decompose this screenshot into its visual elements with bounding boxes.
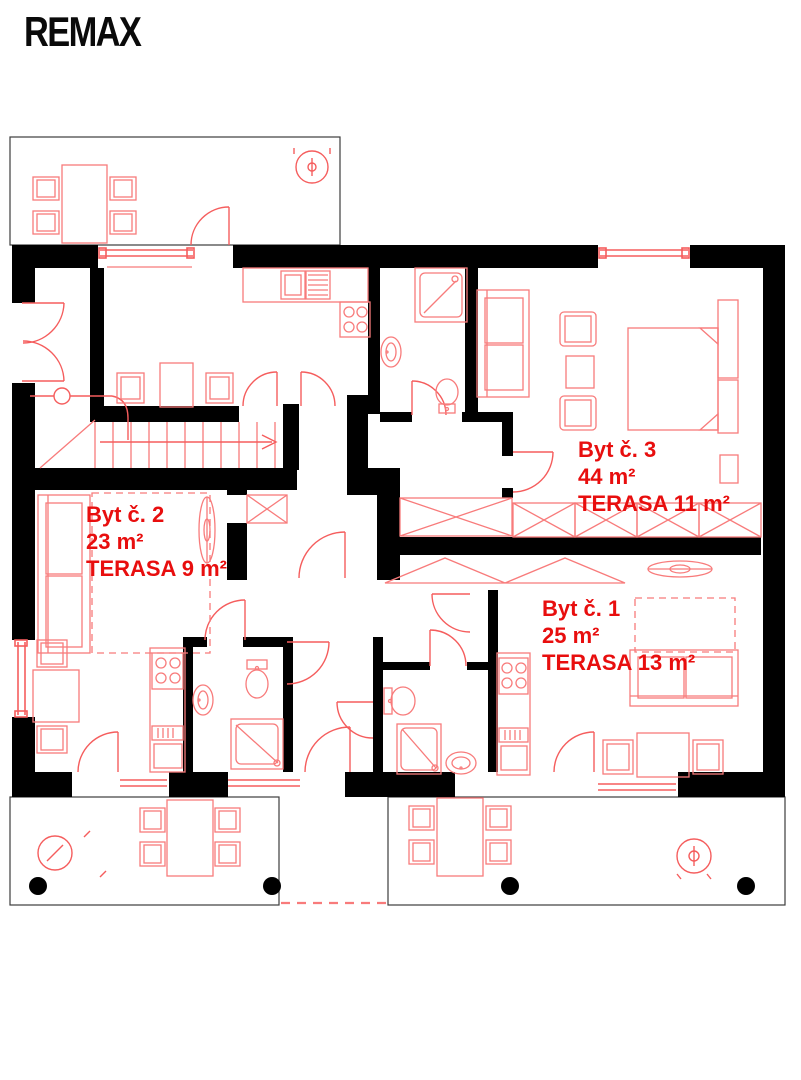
door-swing-icon [287, 642, 329, 684]
toilet-icon [384, 687, 415, 715]
door-swing-icon [513, 452, 553, 492]
sofa-icon [477, 290, 529, 397]
apartment-area: 23 m² [86, 529, 143, 554]
table-icon [33, 640, 79, 753]
study-room-furniture [117, 363, 233, 407]
dining-table [33, 165, 136, 243]
door-swing-icon [554, 732, 594, 772]
toilet-icon [246, 660, 268, 698]
ceiling-light-icon [38, 831, 106, 877]
table-icon [603, 733, 723, 777]
sink-icon [381, 337, 401, 367]
terrace-projection-dashed [635, 598, 735, 652]
window-icon [120, 780, 167, 786]
stove-icon [499, 658, 528, 694]
apartment-terrace: TERASA 13 m² [542, 650, 695, 675]
sink-icon [193, 685, 213, 715]
column-dot [263, 877, 281, 895]
apartment-area: 25 m² [542, 623, 599, 648]
shower-icon [231, 719, 283, 769]
apartment-name: Byt č. 3 [578, 437, 656, 462]
terrace-bottom-right [388, 797, 785, 905]
shower-icon [397, 724, 441, 774]
window-icon [99, 248, 194, 267]
kitchen-column [497, 653, 530, 775]
door-swing-icon [337, 702, 373, 738]
apartment-3-label: Byt č. 3 44 m² TERASA 11 m² [578, 437, 730, 516]
terrace-bottom-left [10, 797, 281, 905]
door-swing-icon [78, 732, 118, 772]
stove-icon [152, 653, 183, 689]
floorplan-drawing: Byt č. 3 44 m² TERASA 11 m² Byt č. 2 23 … [0, 0, 801, 1080]
ceiling-light-icon [294, 148, 330, 183]
sink-icon [446, 752, 476, 774]
apartment-2-label: Byt č. 2 23 m² TERASA 9 m² [86, 502, 227, 581]
door-swing-icon [301, 372, 335, 406]
sofa-icon [38, 495, 90, 653]
stairs-icon [30, 388, 276, 468]
awning-icon [199, 497, 215, 563]
door-swing-icon [299, 532, 345, 578]
ceiling-light-icon [677, 839, 711, 879]
kitchen-column [150, 648, 185, 772]
door-swing-icon [205, 600, 245, 640]
stove-icon [340, 302, 370, 337]
dining-table [140, 800, 240, 876]
window-icon [228, 780, 300, 786]
awning-icon [648, 561, 712, 577]
door-swing-icon [191, 207, 229, 245]
door-swing-icon [412, 381, 446, 415]
terrace-top-left [10, 137, 340, 245]
apartment-name: Byt č. 2 [86, 502, 164, 527]
door-swing-icon [430, 630, 466, 666]
door-swing-icon [22, 303, 64, 381]
apartment-terrace: TERASA 11 m² [578, 491, 730, 516]
window-icon [598, 784, 676, 790]
apartment-terrace: TERASA 9 m² [86, 556, 227, 581]
toilet-icon [436, 379, 458, 413]
window-icon [599, 248, 689, 258]
armchair-set [560, 312, 596, 430]
door-swing-icon [305, 727, 350, 772]
apartment-3 [381, 268, 738, 483]
floorplan-page: REMAX [0, 0, 801, 1080]
column-dot [501, 877, 519, 895]
window-icon [15, 640, 27, 717]
column-dot [29, 877, 47, 895]
door-swing-icon [243, 372, 277, 406]
apartment-1-label: Byt č. 1 25 m² TERASA 13 m² [542, 596, 695, 675]
fridge-hatch [306, 271, 330, 299]
column-dot [737, 877, 755, 895]
dining-table [409, 798, 511, 876]
apartment-area: 44 m² [578, 464, 635, 489]
door-swing-icon [432, 594, 470, 632]
shower-icon [415, 268, 467, 322]
kitchen-top [243, 268, 370, 337]
apartment-name: Byt č. 1 [542, 596, 620, 621]
